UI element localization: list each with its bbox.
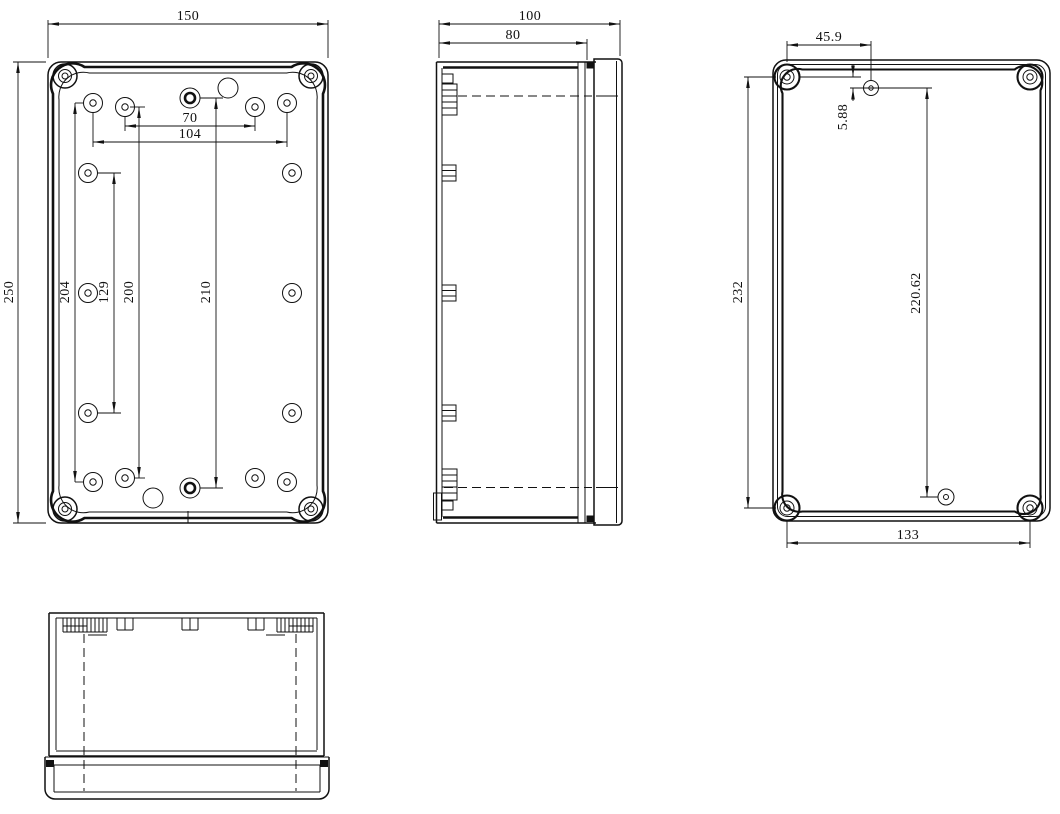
dim-label-104: 104 [179,127,202,142]
latch-block [320,760,328,767]
dim-label-80: 80 [506,28,521,43]
technical-drawing-canvas: 150 250 70 104 204 [0,0,1060,814]
dim-label-5-88: 5.88 [836,104,851,131]
dim-label-232: 232 [731,281,746,304]
sheet-background [0,0,1060,814]
dim-label-220-62: 220.62 [909,272,924,314]
dim-label-133: 133 [897,528,920,543]
latch-block [46,760,54,767]
dim-label-100: 100 [519,9,542,24]
dim-label-70: 70 [183,111,198,126]
dim-label-45-9: 45.9 [816,30,843,45]
dim-label-129: 129 [97,281,112,304]
dim-label-250: 250 [2,281,17,304]
dim-label-150: 150 [177,9,200,24]
dim-label-200: 200 [122,281,137,304]
latch-block [587,516,594,523]
dim-label-204: 204 [58,281,73,304]
dim-label-210: 210 [199,281,214,304]
drawing-sheet: 150 250 70 104 204 [0,0,1060,814]
latch-block [587,62,594,69]
